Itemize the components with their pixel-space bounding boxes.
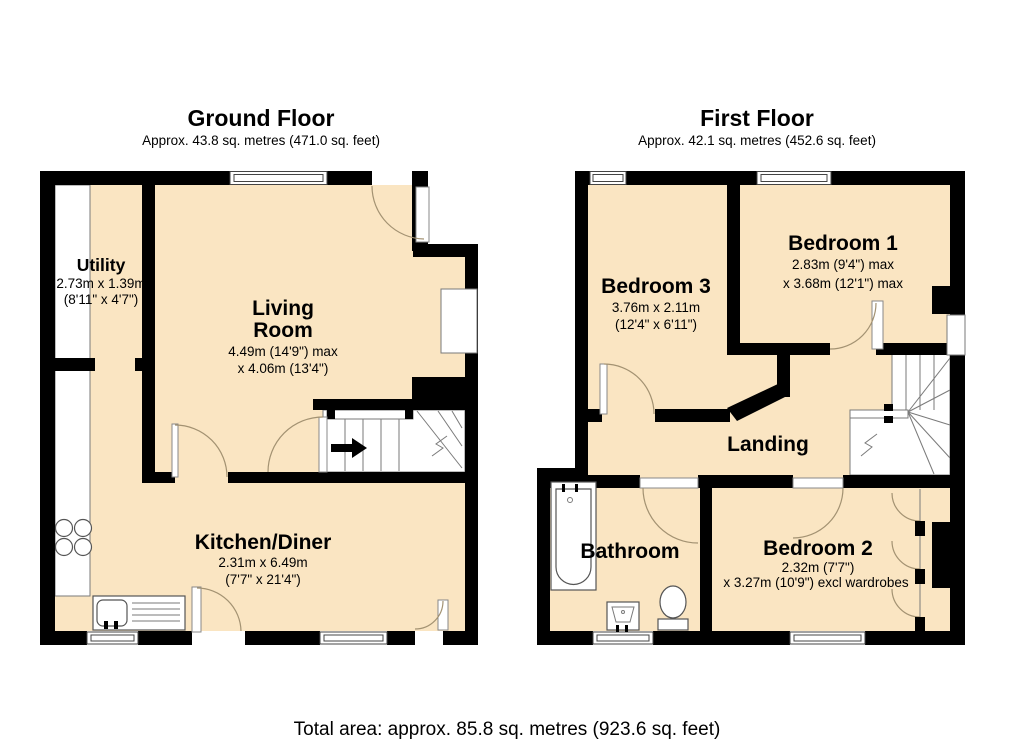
window-icon: [757, 172, 831, 185]
floorplan-canvas: Ground Floor Approx. 43.8 sq. metres (47…: [0, 0, 1024, 744]
total-area-text: Total area: approx. 85.8 sq. metres (923…: [294, 719, 721, 740]
basin-icon: [607, 602, 639, 632]
ground-floor-plan: Ground Floor Approx. 43.8 sq. metres (47…: [40, 105, 478, 645]
toilet-icon: [658, 586, 688, 630]
window-icon: [87, 632, 138, 644]
window-icon: [230, 172, 327, 185]
window-icon: [790, 632, 865, 644]
room-dim: (8'11" x 4'7"): [64, 292, 139, 307]
stair-rail: [327, 410, 413, 419]
room-dim: (12'4" x 6'11"): [615, 317, 697, 332]
chimney-breast: [932, 522, 965, 588]
stairs-ground: [323, 410, 465, 472]
newel-post: [327, 410, 335, 419]
room-dim: 2.73m x 1.39m: [56, 276, 145, 291]
room-dim: x 4.06m (13'4"): [238, 361, 329, 376]
newel-post: [405, 410, 413, 419]
room-label-kitchen: Kitchen/Diner: [195, 531, 332, 554]
alcove-recess: [947, 315, 965, 355]
room-dim: 3.76m x 2.11m: [612, 300, 700, 315]
room-dim: (7'7" x 21'4"): [225, 572, 301, 587]
bath-icon: [551, 482, 596, 590]
room-label-landing: Landing: [727, 433, 809, 456]
room-dim: x 3.68m (12'1") max: [783, 276, 903, 291]
chimney-breast: [932, 286, 950, 314]
sink-icon: [93, 596, 185, 630]
room-dim: 2.32m (7'7"): [782, 560, 855, 575]
newel-post: [884, 416, 893, 423]
window-icon: [593, 632, 653, 644]
newel-post: [884, 404, 893, 411]
window-icon: [320, 632, 387, 644]
room-dim: 4.49m (14'9") max: [228, 344, 338, 359]
alcove-recess: [441, 289, 477, 353]
ground-floor-subtitle: Approx. 43.8 sq. metres (471.0 sq. feet): [142, 133, 380, 148]
room-label-bathroom: Bathroom: [580, 540, 679, 563]
room-label-utility: Utility: [77, 255, 126, 275]
first-floor-subtitle: Approx. 42.1 sq. metres (452.6 sq. feet): [638, 133, 876, 148]
chimney-breast: [412, 377, 465, 410]
room-label-living-2: Room: [253, 319, 313, 342]
window-icon: [590, 172, 626, 185]
ground-floor-title: Ground Floor: [188, 105, 335, 131]
first-floor-title: First Floor: [700, 105, 814, 131]
room-dim: x 3.27m (10'9") excl wardrobes: [723, 575, 908, 590]
first-floor-plan: First Floor Approx. 42.1 sq. metres (452…: [537, 105, 965, 645]
floorplan-page: Ground Floor Approx. 43.8 sq. metres (47…: [0, 0, 1024, 744]
room-dim: 2.83m (9'4") max: [792, 257, 894, 272]
room-label-bedroom2: Bedroom 2: [763, 537, 873, 560]
room-dim: 2.31m x 6.49m: [218, 555, 307, 570]
room-label-bedroom3: Bedroom 3: [601, 275, 711, 298]
room-label-bedroom1: Bedroom 1: [788, 232, 898, 255]
stair-rail: [850, 410, 908, 418]
room-label-living: Living: [252, 297, 314, 320]
